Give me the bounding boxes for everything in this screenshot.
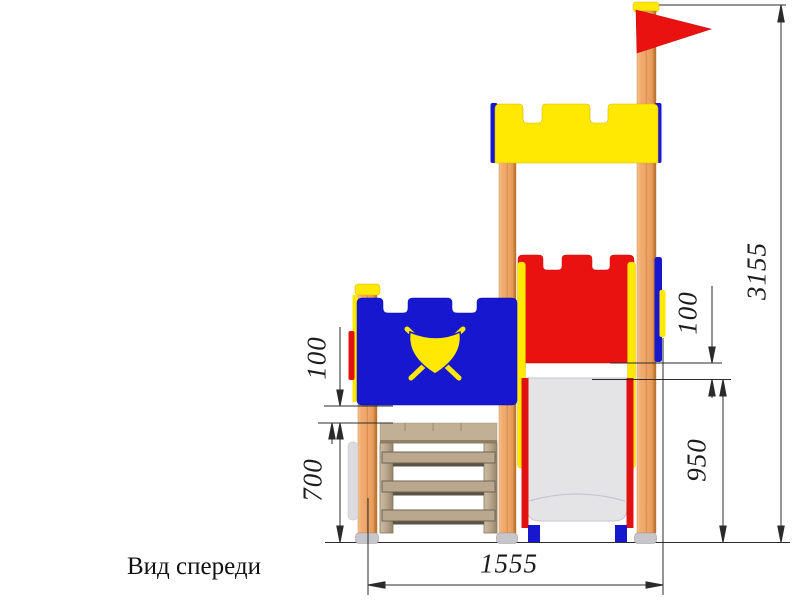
dim-label-overall-width: 1555 — [480, 549, 538, 580]
ladder — [380, 443, 497, 533]
post-base-caps — [356, 533, 657, 544]
dim-label-slide-platform-height: 950 — [682, 438, 713, 482]
right-pole-strips — [655, 257, 666, 362]
dim-label-left-gap: 100 — [302, 336, 333, 380]
left-edge-strips — [348, 295, 358, 520]
dim-label-overall-height: 3155 — [742, 242, 773, 300]
flag-icon — [636, 10, 711, 53]
red-tower-panel — [518, 255, 634, 363]
view-caption: Вид спереди — [127, 553, 261, 581]
drawing-canvas: 3155 100 950 100 700 1555 Вид спереди — [0, 0, 800, 600]
dim-label-lower-platform-height: 700 — [298, 458, 329, 502]
top-yellow-panel — [491, 103, 662, 163]
dim-label-right-gap: 100 — [673, 291, 704, 335]
slide — [522, 378, 634, 542]
platform — [380, 423, 497, 444]
